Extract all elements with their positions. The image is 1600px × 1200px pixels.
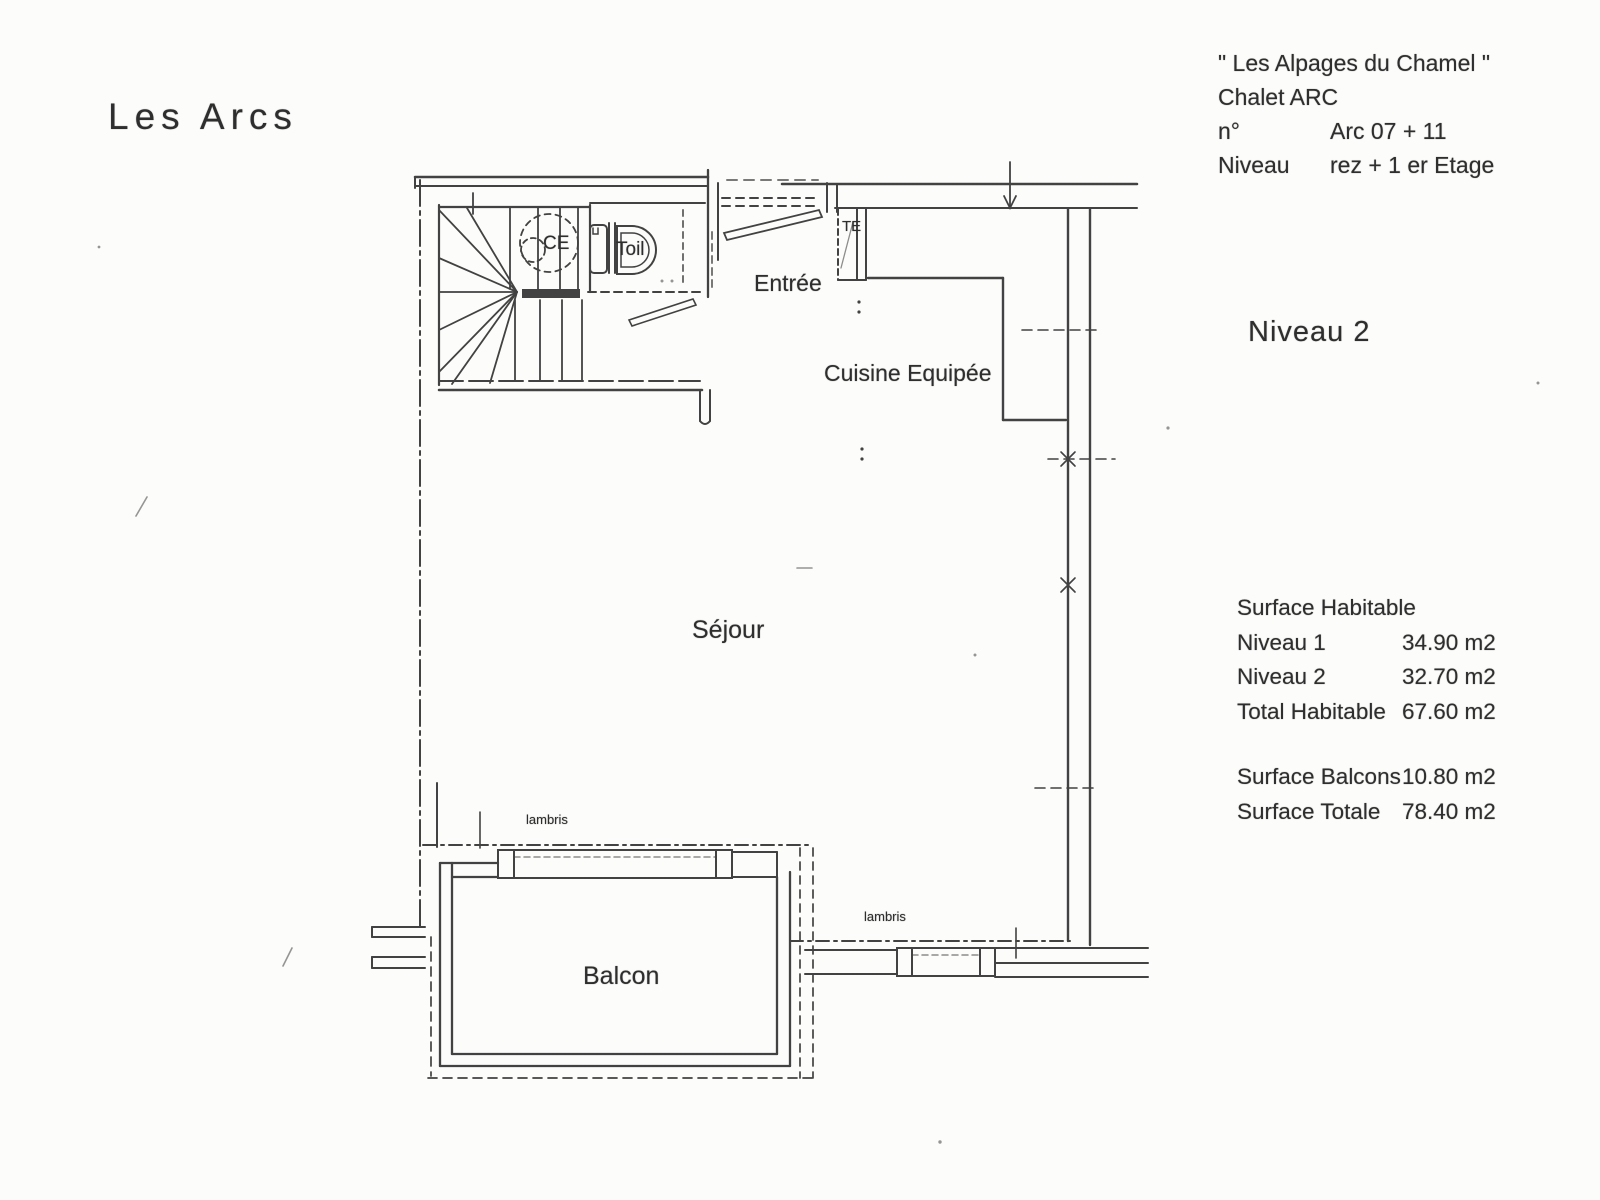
unit-number-label: n° xyxy=(1218,114,1330,148)
water-heater-label: CE xyxy=(543,233,569,255)
balcony-window xyxy=(423,812,813,878)
kitchen-counter xyxy=(868,278,1066,420)
table-row: Niveau 1 34.90 m2 xyxy=(1237,626,1496,661)
staircase xyxy=(439,205,590,385)
level-value: rez + 1 er Etage xyxy=(1330,148,1494,182)
surface-table: Surface Habitable Niveau 1 34.90 m2 Nive… xyxy=(1237,591,1496,829)
top-wall xyxy=(415,177,1137,208)
page-title: Les Arcs xyxy=(108,96,298,138)
project-name: " Les Alpages du Chamel " xyxy=(1218,46,1494,80)
electrical-panel-box xyxy=(838,209,866,461)
room-label-cuisine: Cuisine Equipée xyxy=(824,360,992,387)
level-label: Niveau xyxy=(1218,148,1330,182)
room-label-entree: Entrée xyxy=(754,270,822,297)
unit-number-value: Arc 07 + 11 xyxy=(1330,114,1447,148)
table-row: Niveau 2 32.70 m2 xyxy=(1237,660,1496,695)
table-row: Surface Totale 78.40 m2 xyxy=(1237,795,1496,830)
sejour-top-wall xyxy=(439,381,710,424)
unit-number-row: n° Arc 07 + 11 xyxy=(1218,114,1494,148)
room-label-balcon: Balcon xyxy=(583,962,659,991)
right-window xyxy=(790,928,1148,977)
electrical-panel-label: TE xyxy=(842,214,854,240)
table-row: Total Habitable 67.60 m2 xyxy=(1237,695,1496,730)
bottom-left-wall-stub xyxy=(372,927,425,968)
surface-table-title: Surface Habitable xyxy=(1237,591,1496,626)
lambris-label-right: lambris xyxy=(864,909,906,924)
left-wall xyxy=(420,180,437,928)
chalet-name: Chalet ARC xyxy=(1218,80,1494,114)
room-label-sejour: Séjour xyxy=(692,616,764,645)
header-block: " Les Alpages du Chamel " Chalet ARC n° … xyxy=(1218,46,1494,182)
level-title: Niveau 2 xyxy=(1248,316,1370,349)
level-row: Niveau rez + 1 er Etage xyxy=(1218,148,1494,182)
scanned-floor-plan-sheet: Les Arcs " Les Alpages du Chamel " Chale… xyxy=(0,0,1600,1200)
entrance-door xyxy=(722,183,837,240)
toilet-label: Toil xyxy=(616,239,645,261)
right-wall xyxy=(1022,209,1115,945)
table-row: Surface Balcons 10.80 m2 xyxy=(1237,760,1496,795)
lambris-label-left: lambris xyxy=(526,812,568,827)
